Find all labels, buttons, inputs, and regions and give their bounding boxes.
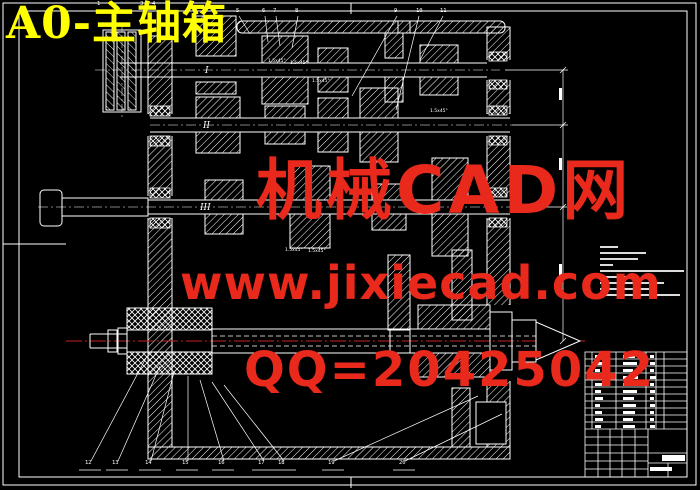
bom-row — [0, 423, 700, 430]
chamfer-label: 1.5x45° — [312, 78, 330, 84]
watermark-qq: QQ=20425042 — [244, 346, 655, 394]
part-callout-number: 13 — [112, 461, 119, 467]
watermark-site-name: 机械CAD网 — [256, 158, 632, 224]
chamfer-label: 1.5x45° — [308, 248, 326, 254]
shaft-1-label: I — [204, 66, 209, 76]
notes-line — [600, 252, 646, 254]
shaft-2-label: II — [202, 121, 211, 131]
part-callout-number: 5 — [236, 9, 239, 15]
part-callout-number: 10 — [416, 9, 423, 15]
part-callout-number: 16 — [218, 461, 225, 467]
part-callout-number: 20 — [399, 461, 406, 467]
cad-screenshot: { "title": { "text": "A0-主轴箱" }, "waterm… — [0, 0, 700, 490]
part-callout-number: 8 — [295, 9, 298, 15]
chamfer-label: 1.5x45° — [430, 108, 448, 114]
part-callout-number: 12 — [85, 461, 92, 467]
bom-row — [0, 416, 700, 423]
part-callout-number: 9 — [394, 9, 397, 15]
part-callout-number: 17 — [258, 461, 265, 467]
part-callout-number: 14 — [145, 461, 152, 467]
drawing-title: A0-主轴箱 — [6, 2, 227, 46]
bom-row — [0, 409, 700, 416]
bom-row — [0, 402, 700, 409]
chamfer-label: 1.5x45° — [268, 58, 286, 64]
part-callout-number: 18 — [278, 461, 285, 467]
watermark-url: www.jixiecad.com — [180, 260, 662, 306]
part-callout-number: 15 — [182, 461, 189, 467]
part-callout-number: 7 — [273, 9, 276, 15]
part-callout-number: 11 — [440, 9, 447, 15]
shaft-3-label: III — [199, 203, 211, 213]
part-callout-number: 6 — [262, 9, 265, 15]
notes-line — [600, 246, 618, 248]
part-callout-number: 19 — [328, 461, 335, 467]
chamfer-label: 1.5x45° — [290, 60, 308, 66]
chamfer-label: 1.5x45° — [285, 247, 303, 253]
